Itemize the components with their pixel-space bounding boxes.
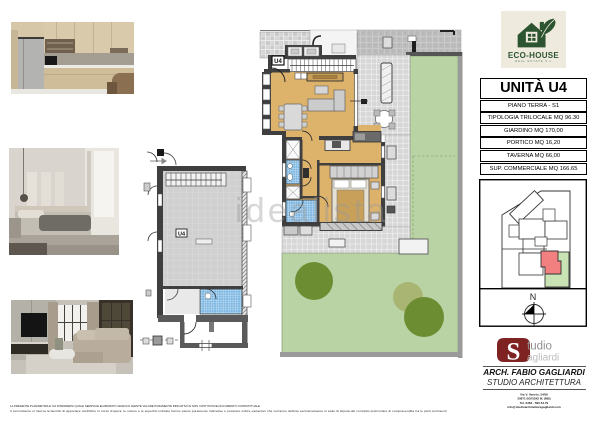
svg-text:U4: U4 [178, 232, 186, 238]
svg-text:S: S [507, 339, 521, 365]
svg-text:tudio: tudio [527, 341, 552, 353]
svg-text:agliardi: agliardi [527, 353, 559, 364]
svg-text:U4: U4 [274, 59, 282, 65]
svg-text:idealista: idealista [235, 192, 389, 230]
svg-text:N: N [530, 292, 537, 302]
